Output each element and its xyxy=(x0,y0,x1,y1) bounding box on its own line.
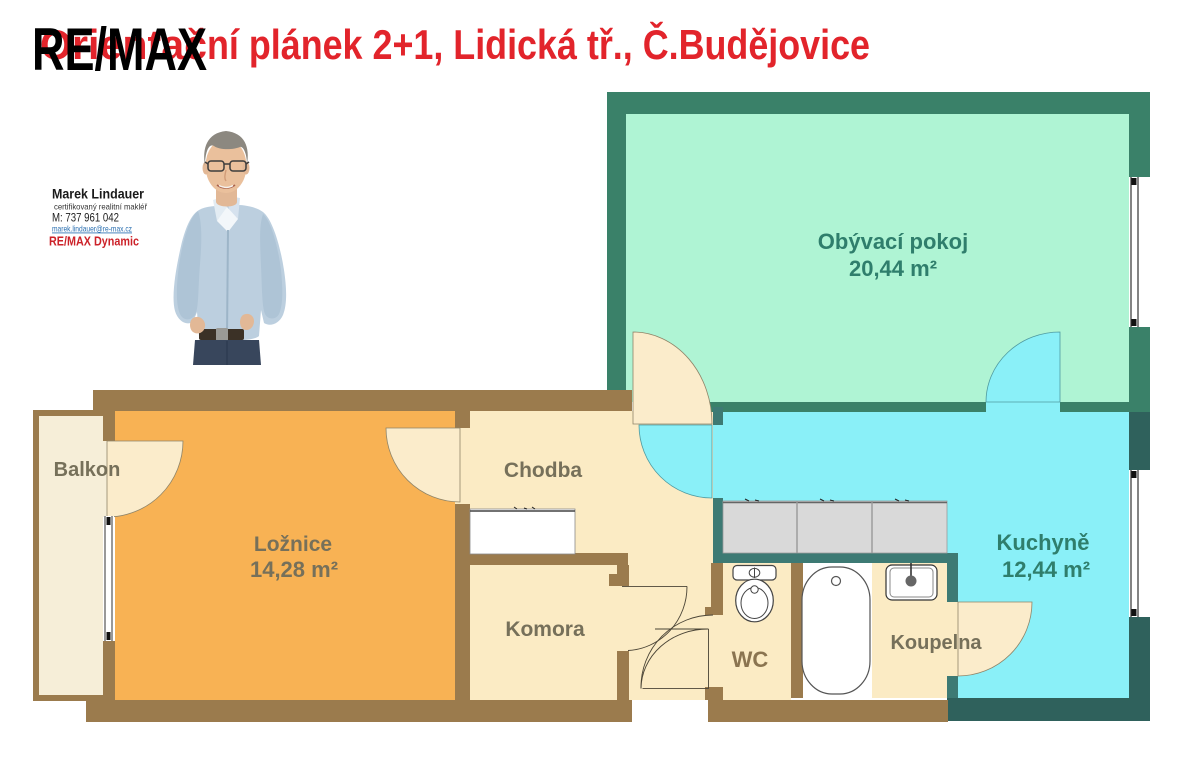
svg-text:RE/MAX Dynamic: RE/MAX Dynamic xyxy=(49,234,139,249)
svg-text:Kuchyně: Kuchyně xyxy=(997,530,1090,555)
svg-text:20,44 m²: 20,44 m² xyxy=(849,256,937,281)
svg-text:Balkon: Balkon xyxy=(54,459,121,481)
svg-text:M: 737 961 042: M: 737 961 042 xyxy=(52,211,119,225)
svg-text:Koupelna: Koupelna xyxy=(890,632,982,654)
svg-text:ní plánek 2+1, Lidická tř., Č.: ní plánek 2+1, Lidická tř., Č.Budějovice xyxy=(207,20,870,68)
svg-text:Marek Lindauer: Marek Lindauer xyxy=(52,186,144,202)
svg-text:Komora: Komora xyxy=(505,618,585,641)
svg-text:12,44 m²: 12,44 m² xyxy=(1002,557,1090,582)
svg-text:marek.lindauer@re-max.cz: marek.lindauer@re-max.cz xyxy=(52,224,132,234)
svg-text:14,28 m²: 14,28 m² xyxy=(250,557,338,582)
svg-text:WC: WC xyxy=(732,647,769,672)
svg-text:Chodba: Chodba xyxy=(504,459,582,482)
svg-text:RE/MAX: RE/MAX xyxy=(32,16,207,83)
svg-text:Ložnice: Ložnice xyxy=(254,533,332,556)
svg-text:Obývací pokoj: Obývací pokoj xyxy=(818,229,968,254)
